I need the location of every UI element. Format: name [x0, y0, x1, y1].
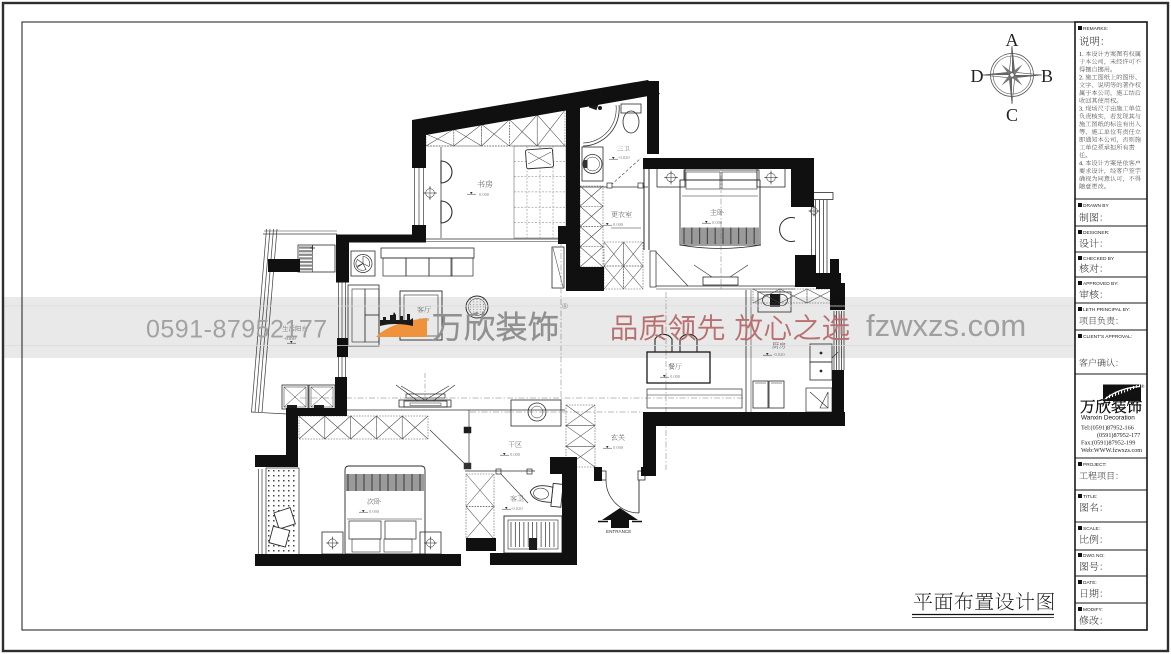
svg-text:DRAWN BY: DRAWN BY: [1083, 203, 1109, 209]
svg-text:DWG NO:: DWG NO:: [1083, 553, 1105, 559]
svg-text:CLIENT'S APPROVAL:: CLIENT'S APPROVAL:: [1083, 334, 1132, 340]
svg-text:0.000: 0.000: [670, 374, 681, 379]
svg-text:CHECKED BY: CHECKED BY: [1083, 256, 1115, 262]
svg-text:APPROVED BY:: APPROVED BY:: [1083, 281, 1118, 287]
svg-text:0.000: 0.000: [613, 445, 624, 450]
svg-text:0.000: 0.000: [510, 452, 521, 457]
svg-text:0.000: 0.000: [479, 192, 490, 197]
svg-text:PROJECT:: PROJECT:: [1083, 462, 1106, 468]
svg-text:®: ®: [562, 302, 568, 311]
svg-text:-0.020: -0.020: [618, 155, 630, 160]
svg-text:MODIFY:: MODIFY:: [1083, 607, 1103, 613]
svg-text:D: D: [971, 66, 984, 86]
svg-text:(0591)87952-177: (0591)87952-177: [1097, 432, 1140, 439]
svg-text:DESIGNER:: DESIGNER:: [1083, 230, 1109, 236]
svg-text:0.000: 0.000: [613, 222, 624, 227]
svg-text:REMARKS:: REMARKS:: [1083, 26, 1108, 32]
svg-text:SCALE:: SCALE:: [1083, 526, 1100, 532]
svg-text:C: C: [1006, 105, 1018, 125]
svg-text:LETH PRINCIPAL BY:: LETH PRINCIPAL BY:: [1083, 307, 1130, 313]
svg-text:TITLE:: TITLE:: [1083, 494, 1097, 500]
svg-text:Tel:(0591)87952-166: Tel:(0591)87952-166: [1081, 425, 1134, 432]
svg-text:Web:WWW.fzwxzs.com: Web:WWW.fzwxzs.com: [1081, 447, 1142, 454]
svg-text:A: A: [1006, 30, 1019, 50]
svg-text:0591-87952177: 0591-87952177: [146, 316, 328, 344]
svg-text:Wanxin Decoration: Wanxin Decoration: [1081, 415, 1135, 422]
svg-text:Fax:(0591)87952-199: Fax:(0591)87952-199: [1081, 440, 1135, 447]
svg-text:ENTRANCE: ENTRANCE: [606, 529, 631, 534]
svg-text:DATE:: DATE:: [1083, 580, 1097, 586]
svg-text:B: B: [1041, 66, 1053, 86]
svg-text:-0.020: -0.020: [511, 506, 523, 511]
svg-text:fzwxzs.com: fzwxzs.com: [866, 308, 1026, 343]
svg-text:0.000: 0.000: [369, 509, 380, 514]
